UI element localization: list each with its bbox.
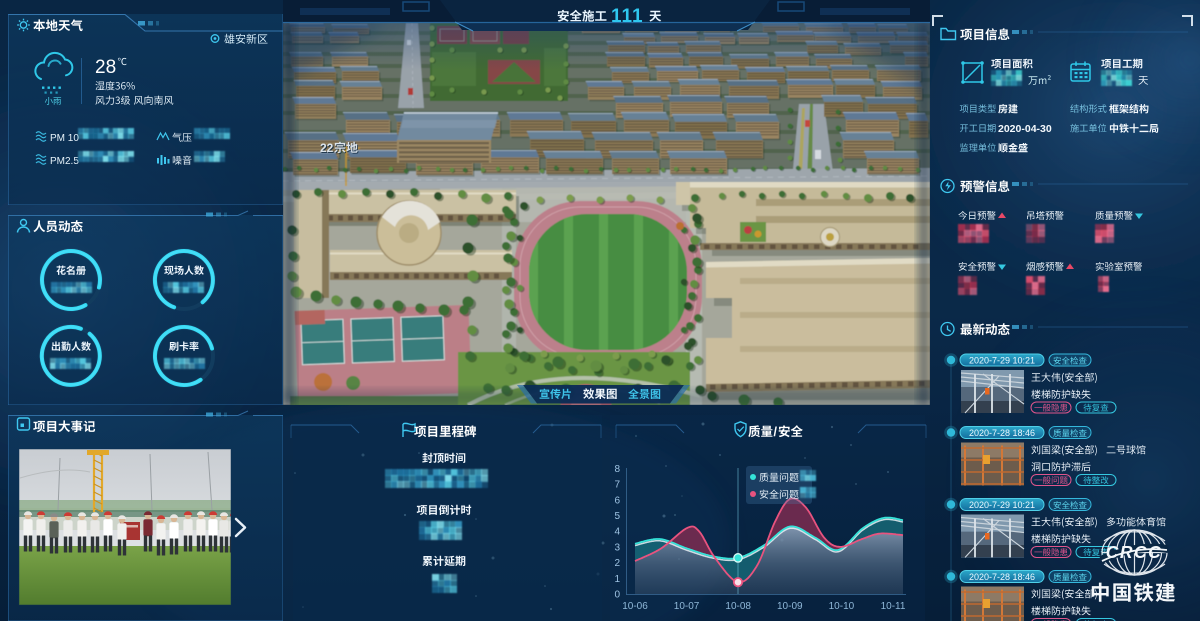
svg-text:0: 0 bbox=[614, 590, 620, 601]
svg-text:PM 10: PM 10 bbox=[50, 133, 79, 144]
svg-text:3: 3 bbox=[614, 542, 620, 553]
svg-text:2020-7-28 18:46: 2020-7-28 18:46 bbox=[969, 572, 1035, 582]
svg-text:2: 2 bbox=[614, 558, 620, 569]
svg-text:CRCC: CRCC bbox=[1106, 542, 1163, 562]
svg-text:10-06: 10-06 bbox=[622, 601, 648, 612]
svg-text:2020-7-28 18:46: 2020-7-28 18:46 bbox=[969, 428, 1035, 438]
svg-text:2020-7-29 10:21: 2020-7-29 10:21 bbox=[969, 356, 1035, 366]
svg-text:10-11: 10-11 bbox=[881, 601, 906, 612]
svg-text:/: / bbox=[774, 425, 778, 439]
svg-text:7: 7 bbox=[614, 480, 620, 491]
svg-text:8: 8 bbox=[614, 464, 620, 475]
svg-text:4: 4 bbox=[614, 527, 620, 538]
svg-text:1: 1 bbox=[614, 574, 620, 585]
svg-text:10-07: 10-07 bbox=[674, 601, 700, 612]
svg-text:6: 6 bbox=[614, 495, 620, 506]
svg-text:2020-04-30: 2020-04-30 bbox=[998, 123, 1052, 135]
svg-text:PM2.5: PM2.5 bbox=[50, 156, 79, 167]
svg-text:10-08: 10-08 bbox=[725, 601, 751, 612]
svg-text:10-10: 10-10 bbox=[829, 601, 855, 612]
svg-text:2020-7-29 10:21: 2020-7-29 10:21 bbox=[969, 500, 1035, 510]
svg-text:28: 28 bbox=[95, 57, 116, 78]
svg-text:10-09: 10-09 bbox=[777, 601, 803, 612]
svg-text:5: 5 bbox=[614, 511, 620, 522]
svg-text:111: 111 bbox=[611, 6, 644, 27]
